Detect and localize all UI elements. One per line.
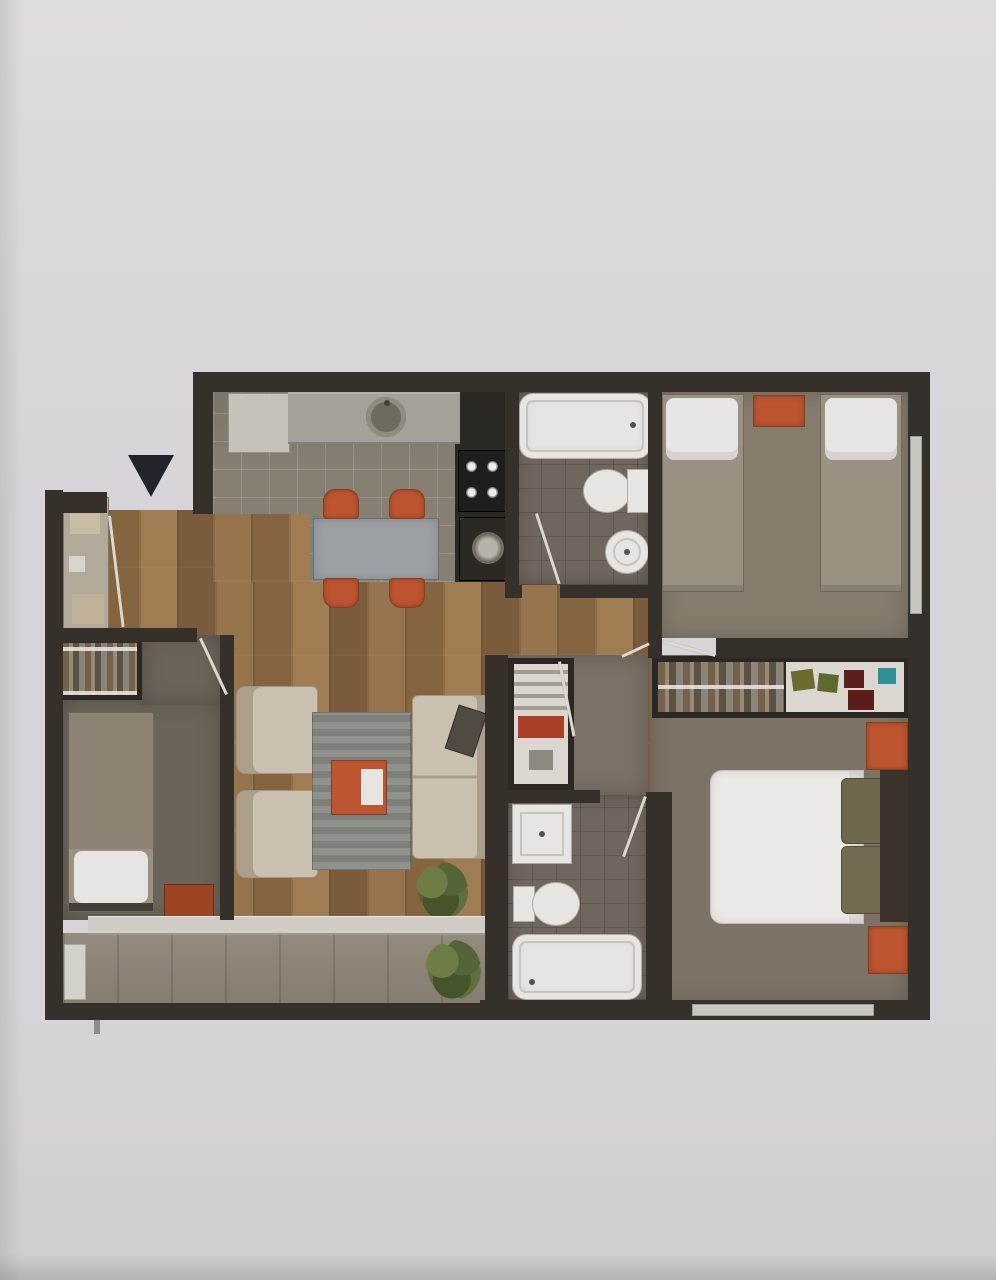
burner bbox=[466, 461, 477, 472]
wall-left bbox=[45, 490, 63, 1020]
blanket bbox=[69, 713, 153, 849]
burner bbox=[466, 487, 477, 498]
bedroom-left-floor-upper bbox=[142, 635, 220, 705]
utility-closet bbox=[63, 497, 109, 632]
shower-tray bbox=[512, 804, 572, 864]
pillow bbox=[666, 398, 738, 460]
wall-bottom-left bbox=[45, 1003, 508, 1020]
wall-bedroom-left-top bbox=[45, 628, 197, 642]
living-room-plant bbox=[416, 862, 468, 920]
window-twin-right bbox=[910, 436, 922, 614]
nightstand-left-bedroom bbox=[164, 884, 214, 920]
wardrobe-item bbox=[817, 673, 839, 693]
entry-wardrobe bbox=[58, 638, 142, 700]
cooktop bbox=[458, 450, 507, 512]
hall-shelf-contents bbox=[514, 664, 568, 784]
dining-chair bbox=[323, 578, 359, 608]
toilet-top-bowl bbox=[583, 469, 631, 513]
bidet bbox=[605, 530, 649, 574]
wardrobe-item bbox=[878, 668, 896, 684]
master-bed bbox=[710, 770, 908, 922]
nightstand-master-bottom bbox=[868, 926, 908, 974]
nightstand-twin bbox=[753, 395, 805, 427]
floor-plan bbox=[0, 0, 996, 1280]
armchair-top bbox=[236, 686, 318, 774]
single-bed-left bbox=[662, 394, 744, 592]
sofa bbox=[412, 695, 494, 859]
sofa-cushion bbox=[445, 704, 488, 757]
wall-bathroom-top-bottom-a bbox=[505, 585, 522, 598]
entry-arrow-icon bbox=[128, 455, 174, 497]
wardrobe-box bbox=[848, 690, 874, 710]
wardrobe-hanging-clothes bbox=[63, 643, 137, 695]
wall-bathroom-top-left bbox=[505, 388, 519, 598]
armchair-bottom bbox=[236, 790, 318, 878]
entry-wood-patch bbox=[213, 514, 310, 582]
bathtub-bottom bbox=[512, 934, 642, 1000]
bed-frame-foot bbox=[69, 903, 153, 911]
pillow bbox=[74, 851, 148, 903]
dining-table bbox=[313, 518, 439, 580]
dining-chair bbox=[389, 489, 425, 519]
washer-drum bbox=[472, 532, 504, 564]
wardrobe-item bbox=[791, 669, 816, 692]
dining-chair bbox=[389, 578, 425, 608]
balcony-sliding-door-ledge bbox=[88, 916, 493, 935]
wall-stub-bottom bbox=[94, 1020, 100, 1034]
burner bbox=[487, 487, 498, 498]
wall-bathroom-twin-divider bbox=[648, 388, 662, 658]
wall-twin-bottom bbox=[716, 638, 908, 658]
master-wardrobe bbox=[652, 656, 910, 718]
dining-chair bbox=[323, 489, 359, 519]
floor-plan-photo bbox=[0, 0, 996, 1280]
wall-kitchen-left bbox=[193, 372, 213, 514]
wall-top bbox=[205, 372, 930, 392]
single-bed-left-room bbox=[68, 712, 154, 912]
burner bbox=[487, 461, 498, 472]
balcony-unit bbox=[64, 944, 86, 1000]
wall-living-hall bbox=[485, 655, 508, 1020]
refrigerator bbox=[228, 393, 290, 453]
wardrobe-item bbox=[844, 670, 864, 688]
coffee-table-tray bbox=[361, 769, 383, 805]
coffee-table bbox=[331, 760, 387, 815]
wall-bathroom-top-bottom-b bbox=[560, 585, 655, 598]
wardrobe-hanging-clothes bbox=[658, 662, 784, 712]
wall-bedroom-left-right bbox=[220, 635, 234, 920]
kitchen-faucet bbox=[384, 400, 390, 406]
bathtub-top bbox=[519, 393, 651, 459]
toilet-bottom-bowl bbox=[532, 882, 580, 926]
headboard bbox=[880, 770, 908, 922]
nightstand-master-top bbox=[866, 722, 908, 770]
wall-hall-bathroom bbox=[508, 790, 600, 803]
single-bed-right bbox=[820, 394, 902, 592]
washing-machine bbox=[459, 517, 509, 581]
wall-bathroom-master-divider bbox=[646, 792, 672, 1003]
toilet-top-tank bbox=[627, 469, 650, 513]
balcony-plant bbox=[425, 940, 481, 1000]
wardrobe-shelves bbox=[786, 662, 904, 712]
pillow bbox=[825, 398, 897, 460]
window-master-bottom bbox=[692, 1004, 874, 1016]
